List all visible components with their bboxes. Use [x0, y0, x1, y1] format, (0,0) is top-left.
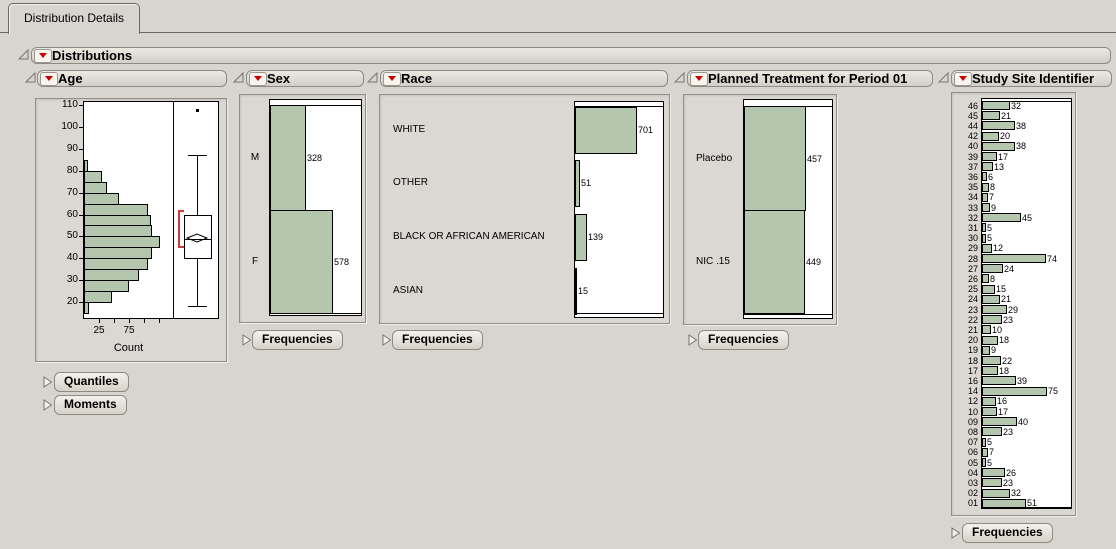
age-y-tick: [79, 105, 84, 106]
boxplot-whisker-cap-top: [188, 155, 207, 156]
site-bar-05[interactable]: [982, 458, 986, 467]
site-bar-16[interactable]: [982, 376, 1016, 385]
site-bar-22[interactable]: [982, 315, 1002, 324]
treatment-frequencies-closed-triangle-icon[interactable]: [687, 333, 698, 347]
race-category-label: ASIAN: [393, 285, 423, 297]
site-bar-24[interactable]: [982, 295, 1000, 304]
site-bar-12[interactable]: [982, 397, 996, 406]
site-category-label: 42: [954, 131, 978, 141]
sex-chart-well: M328F578: [239, 94, 366, 323]
age-histogram-bar[interactable]: [84, 182, 107, 194]
jmp-report-window: Distribution Details Distributions Age S…: [0, 0, 1116, 549]
age-histogram-bar[interactable]: [84, 280, 129, 292]
site-category-label: 20: [954, 335, 978, 345]
race-collapse-triangle-icon[interactable]: [366, 71, 379, 84]
treatment-category-label: NIC .15: [696, 256, 730, 268]
race-frequencies-closed-triangle-icon[interactable]: [381, 333, 392, 347]
race-plot-bottom-line: [575, 313, 663, 314]
site-bar-32[interactable]: [982, 213, 1021, 222]
site-bar-33[interactable]: [982, 203, 990, 212]
site-category-label: 35: [954, 182, 978, 192]
age-chart-well: 20304050607080901001102575Count: [35, 98, 227, 362]
site-category-label: 44: [954, 121, 978, 131]
age-x-tick: [99, 319, 100, 323]
site-collapse-triangle-icon[interactable]: [937, 71, 950, 84]
race-red-triangle-menu-button[interactable]: [383, 72, 401, 86]
site-bar-27[interactable]: [982, 264, 1003, 273]
site-value-label: 13: [994, 162, 1004, 172]
site-value-label: 12: [993, 243, 1003, 253]
boxplot-mean-diamond: [186, 230, 208, 240]
site-bar-21[interactable]: [982, 325, 991, 334]
moments-button[interactable]: Moments: [54, 395, 127, 415]
site-value-label: 26: [1006, 468, 1016, 478]
site-category-label: 37: [954, 162, 978, 172]
site-value-label: 10: [992, 325, 1002, 335]
site-value-label: 38: [1016, 141, 1026, 151]
shortest-half-bracket-bottom: [178, 246, 184, 248]
race-bar[interactable]: [575, 107, 637, 154]
boxplot-whisker-cap-bottom: [188, 306, 207, 307]
sex-category-label: F: [246, 256, 264, 268]
site-bar-44[interactable]: [982, 121, 1015, 130]
site-value-label: 29: [1008, 305, 1018, 315]
distributions-title: Distributions: [52, 48, 132, 63]
site-category-label: 04: [954, 468, 978, 478]
site-category-label: 24: [954, 294, 978, 304]
site-category-label: 01: [954, 498, 978, 508]
site-value-label: 20: [1000, 131, 1010, 141]
site-bar-26[interactable]: [982, 274, 989, 283]
red-triangle-icon: [254, 76, 262, 81]
age-x-tick: [144, 319, 145, 323]
race-bar[interactable]: [575, 268, 577, 315]
red-triangle-icon: [39, 53, 47, 58]
treatment-title: Planned Treatment for Period 01: [708, 71, 907, 86]
site-category-label: 46: [954, 101, 978, 111]
site-frequencies-closed-triangle-icon[interactable]: [950, 526, 961, 540]
site-bar-42[interactable]: [982, 132, 999, 141]
site-bar-06[interactable]: [982, 448, 988, 457]
site-category-label: 02: [954, 488, 978, 498]
site-bar-20[interactable]: [982, 336, 998, 345]
site-value-label: 8: [990, 274, 995, 284]
age-histogram-bar[interactable]: [84, 204, 148, 216]
race-title: Race: [401, 71, 432, 86]
age-x-tick: [159, 319, 160, 323]
frequencies-button-label: Frequencies: [708, 332, 779, 346]
age-x-axis-label: Count: [84, 342, 173, 354]
site-value-label: 39: [1017, 376, 1027, 386]
age-x-tick-label: 25: [91, 325, 107, 337]
site-category-label: 29: [954, 243, 978, 253]
site-bar-40[interactable]: [982, 142, 1015, 151]
site-panel-header[interactable]: Study Site Identifier: [951, 70, 1112, 87]
shortest-half-bracket-top: [178, 210, 184, 212]
site-chart-well: 4632452144384220403839173713366358347339…: [951, 92, 1076, 516]
site-bar-29[interactable]: [982, 244, 992, 253]
site-bar-30[interactable]: [982, 234, 986, 243]
site-bar-23[interactable]: [982, 305, 1007, 314]
treatment-value-label: 449: [806, 257, 821, 267]
site-category-label: 05: [954, 458, 978, 468]
red-triangle-icon: [959, 76, 967, 81]
age-x-tick: [129, 319, 130, 323]
sex-bar-F[interactable]: [270, 210, 333, 314]
race-value-label: 51: [581, 178, 591, 188]
age-x-tick: [114, 319, 115, 323]
site-category-label: 36: [954, 172, 978, 182]
site-bar-37[interactable]: [982, 162, 993, 171]
site-category-label: 32: [954, 213, 978, 223]
site-bar-45[interactable]: [982, 111, 1000, 120]
site-bar-04[interactable]: [982, 468, 1005, 477]
site-value-label: 5: [987, 458, 992, 468]
site-value-label: 40: [1018, 417, 1028, 427]
age-y-tick-label: 90: [52, 143, 78, 155]
site-category-label: 06: [954, 447, 978, 457]
age-y-tick-label: 40: [52, 252, 78, 264]
sex-title: Sex: [267, 71, 290, 86]
quantiles-closed-triangle-icon[interactable]: [42, 375, 53, 389]
site-category-label: 25: [954, 284, 978, 294]
site-bar-17[interactable]: [982, 366, 998, 375]
tab-label: Distribution Details: [24, 11, 124, 25]
site-category-label: 21: [954, 325, 978, 335]
site-value-label: 38: [1016, 121, 1026, 131]
site-category-label: 22: [954, 315, 978, 325]
race-category-label: WHITE: [393, 124, 425, 136]
site-value-label: 21: [1001, 294, 1011, 304]
red-triangle-icon: [695, 76, 703, 81]
site-bar-18[interactable]: [982, 356, 1001, 365]
age-title: Age: [58, 71, 83, 86]
site-category-label: 03: [954, 478, 978, 488]
red-triangle-menu-button[interactable]: [34, 49, 52, 63]
age-histogram-bar[interactable]: [84, 236, 160, 248]
site-category-label: 07: [954, 437, 978, 447]
site-value-label: 21: [1001, 111, 1011, 121]
site-category-label: 26: [954, 274, 978, 284]
race-value-label: 139: [588, 232, 603, 242]
site-value-label: 18: [999, 335, 1009, 345]
site-value-label: 5: [987, 437, 992, 447]
treatment-panel-header[interactable]: Planned Treatment for Period 01: [687, 70, 933, 87]
red-triangle-icon: [388, 76, 396, 81]
site-bar-25[interactable]: [982, 285, 995, 294]
age-plot-divider: [173, 101, 174, 319]
site-value-label: 23: [1003, 427, 1013, 437]
site-bar-14[interactable]: [982, 387, 1047, 396]
outline-open-triangle-icon[interactable]: [17, 48, 30, 61]
moments-button-label: Moments: [64, 397, 117, 411]
site-bar-03[interactable]: [982, 478, 1002, 487]
age-histogram-bar[interactable]: [84, 291, 112, 303]
site-category-label: 19: [954, 345, 978, 355]
age-histogram-bar[interactable]: [84, 171, 102, 183]
site-value-label: 23: [1003, 315, 1013, 325]
race-category-label: OTHER: [393, 177, 428, 189]
site-value-label: 9: [991, 345, 996, 355]
site-value-label: 74: [1047, 254, 1057, 264]
site-value-label: 9: [991, 203, 996, 213]
sex-value-label: 578: [334, 257, 349, 267]
race-bar[interactable]: [575, 160, 580, 207]
age-histogram-bar[interactable]: [84, 215, 151, 226]
frequencies-button-label: Frequencies: [402, 332, 473, 346]
sex-category-label: M: [246, 152, 264, 164]
site-value-label: 45: [1022, 213, 1032, 223]
site-category-label: 31: [954, 223, 978, 233]
site-value-label: 15: [996, 284, 1006, 294]
site-bar-35[interactable]: [982, 183, 989, 192]
quantiles-button[interactable]: Quantiles: [54, 372, 129, 392]
site-category-label: 34: [954, 192, 978, 202]
distributions-outline-header[interactable]: Distributions: [31, 47, 1111, 64]
site-category-label: 23: [954, 305, 978, 315]
age-y-tick-label: 60: [52, 209, 78, 221]
age-histogram-bar[interactable]: [84, 193, 119, 205]
site-value-label: 22: [1002, 356, 1012, 366]
site-bar-31[interactable]: [982, 223, 986, 232]
race-bar[interactable]: [575, 214, 587, 261]
site-value-label: 5: [987, 233, 992, 243]
site-value-label: 16: [997, 396, 1007, 406]
sex-value-label: 328: [307, 153, 322, 163]
race-value-label: 701: [638, 125, 653, 135]
site-value-label: 23: [1003, 478, 1013, 488]
boxplot-outlier-point[interactable]: [196, 109, 199, 112]
age-histogram-bar[interactable]: [84, 247, 152, 259]
site-category-label: 18: [954, 356, 978, 366]
site-category-label: 40: [954, 141, 978, 151]
treatment-chart-well: Placebo457NIC .15449: [683, 94, 837, 325]
site-bar-09[interactable]: [982, 417, 1017, 426]
sex-red-triangle-menu-button[interactable]: [249, 72, 267, 86]
site-value-label: 17: [998, 152, 1008, 162]
site-bar-02[interactable]: [982, 489, 1010, 498]
site-value-label: 32: [1011, 488, 1021, 498]
tab-distribution-details[interactable]: Distribution Details: [8, 3, 140, 34]
site-category-label: 12: [954, 396, 978, 406]
race-chart-well: WHITE701OTHER51BLACK OR AFRICAN AMERICAN…: [379, 94, 670, 324]
moments-closed-triangle-icon[interactable]: [42, 398, 53, 412]
age-y-tick-label: 100: [52, 121, 78, 133]
sex-bar-M[interactable]: [270, 105, 306, 211]
site-bar-39[interactable]: [982, 152, 997, 161]
treatment-category-label: Placebo: [696, 153, 732, 165]
race-panel-header[interactable]: Race: [380, 70, 668, 87]
site-category-label: 17: [954, 366, 978, 376]
site-value-label: 5: [987, 223, 992, 233]
age-x-tick-label: 75: [121, 325, 137, 337]
site-bar-46[interactable]: [982, 101, 1010, 110]
age-y-tick: [79, 149, 84, 150]
age-panel-header[interactable]: Age: [37, 70, 227, 87]
site-value-label: 7: [989, 192, 994, 202]
site-title: Study Site Identifier: [972, 71, 1094, 86]
red-triangle-icon: [45, 76, 53, 81]
age-histogram-bar[interactable]: [84, 258, 148, 270]
site-bar-08[interactable]: [982, 427, 1002, 436]
site-category-label: 28: [954, 254, 978, 264]
treatment-collapse-triangle-icon[interactable]: [673, 71, 686, 84]
site-category-label: 16: [954, 376, 978, 386]
treatment-red-triangle-menu-button[interactable]: [690, 72, 708, 86]
race-value-label: 15: [578, 286, 588, 296]
age-y-tick: [79, 127, 84, 128]
age-y-tick-label: 20: [52, 296, 78, 308]
site-bar-10[interactable]: [982, 407, 997, 416]
age-histogram-bar[interactable]: [84, 160, 88, 172]
sex-panel-header[interactable]: Sex: [246, 70, 364, 87]
site-category-label: 30: [954, 233, 978, 243]
site-category-label: 27: [954, 264, 978, 274]
treatment-value-label: 457: [807, 154, 822, 164]
age-histogram-bar[interactable]: [84, 225, 152, 237]
site-value-label: 32: [1011, 101, 1021, 111]
site-bar-01[interactable]: [982, 499, 1026, 508]
shortest-half-bracket: [178, 210, 180, 247]
treatment-frequencies-button[interactable]: Frequencies: [698, 330, 789, 350]
age-y-tick-label: 80: [52, 165, 78, 177]
site-bar-34[interactable]: [982, 193, 988, 202]
site-value-label: 8: [990, 182, 995, 192]
site-bar-19[interactable]: [982, 346, 990, 355]
site-value-label: 17: [998, 407, 1008, 417]
age-y-tick-label: 70: [52, 187, 78, 199]
race-frequencies-button[interactable]: Frequencies: [392, 330, 483, 350]
site-bar-28[interactable]: [982, 254, 1046, 263]
site-value-label: 7: [989, 447, 994, 457]
site-category-label: 09: [954, 417, 978, 427]
site-category-label: 33: [954, 203, 978, 213]
age-y-tick-label: 30: [52, 274, 78, 286]
age-histogram-bar[interactable]: [84, 269, 139, 281]
age-red-triangle-menu-button[interactable]: [40, 72, 58, 86]
site-frequencies-button[interactable]: Frequencies: [962, 523, 1053, 543]
age-histogram-bar[interactable]: [84, 302, 89, 314]
site-category-label: 10: [954, 407, 978, 417]
site-bar-36[interactable]: [982, 172, 987, 181]
frequencies-button-label: Frequencies: [262, 332, 333, 346]
site-category-label: 14: [954, 386, 978, 396]
site-bar-07[interactable]: [982, 438, 986, 447]
age-y-tick-label: 50: [52, 230, 78, 242]
site-red-triangle-menu-button[interactable]: [954, 72, 972, 86]
treatment-bar[interactable]: [744, 106, 806, 211]
tab-strip: Distribution Details: [0, 0, 1116, 33]
site-value-label: 24: [1004, 264, 1014, 274]
site-category-label: 45: [954, 111, 978, 121]
sex-frequencies-button[interactable]: Frequencies: [252, 330, 343, 350]
sex-frequencies-closed-triangle-icon[interactable]: [241, 333, 252, 347]
age-collapse-triangle-icon[interactable]: [24, 71, 37, 84]
sex-collapse-triangle-icon[interactable]: [232, 71, 245, 84]
age-y-tick-label: 110: [52, 99, 78, 111]
race-category-label: BLACK OR AFRICAN AMERICAN: [393, 231, 545, 243]
site-value-label: 51: [1027, 498, 1037, 508]
site-category-label: 39: [954, 152, 978, 162]
treatment-bar[interactable]: [744, 210, 805, 314]
treatment-plot-bottom-line: [744, 314, 832, 315]
site-value-label: 75: [1048, 386, 1058, 396]
quantiles-button-label: Quantiles: [64, 374, 119, 388]
site-value-label: 6: [988, 172, 993, 182]
site-category-label: 08: [954, 427, 978, 437]
frequencies-button-label: Frequencies: [972, 525, 1043, 539]
site-value-label: 18: [999, 366, 1009, 376]
